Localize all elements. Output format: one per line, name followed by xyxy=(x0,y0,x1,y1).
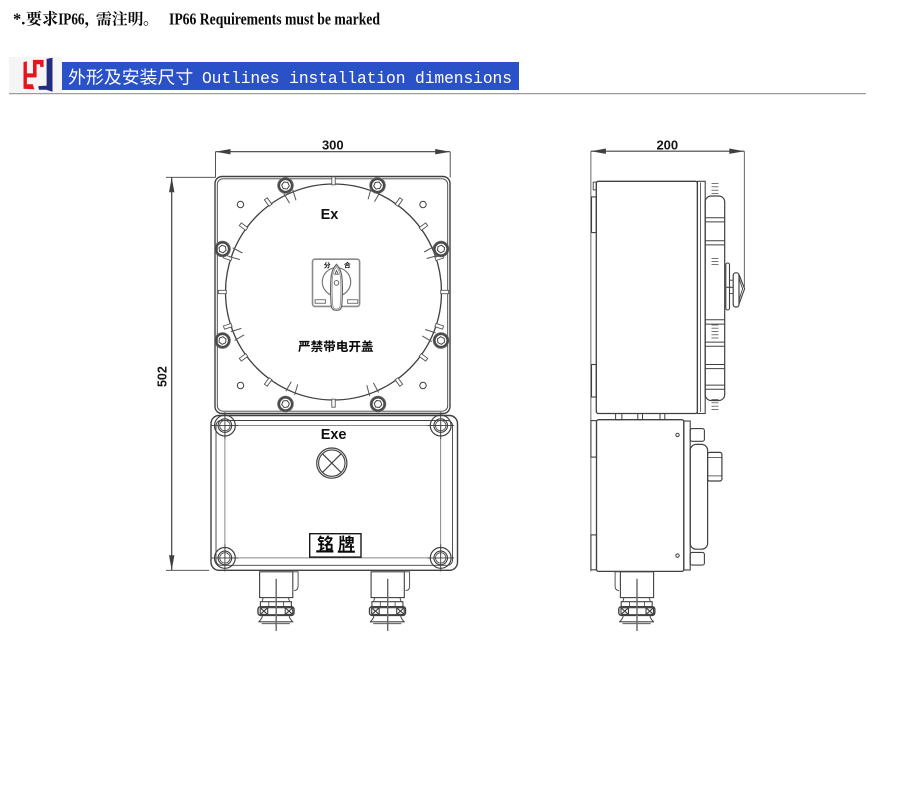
svg-text:502: 502 xyxy=(156,366,170,387)
svg-text:*.: *. xyxy=(13,10,25,29)
svg-text:Outlines installation dimensio: Outlines installation dimensions xyxy=(202,69,512,88)
svg-text:200: 200 xyxy=(656,138,678,153)
svg-text:IP66 Requirements must be mark: IP66 Requirements must be marked xyxy=(169,10,380,29)
svg-text:IP66: IP66 xyxy=(58,10,84,29)
svg-text:Ex: Ex xyxy=(321,207,339,223)
svg-text:300: 300 xyxy=(322,138,344,153)
svg-text:Exe: Exe xyxy=(321,427,347,443)
